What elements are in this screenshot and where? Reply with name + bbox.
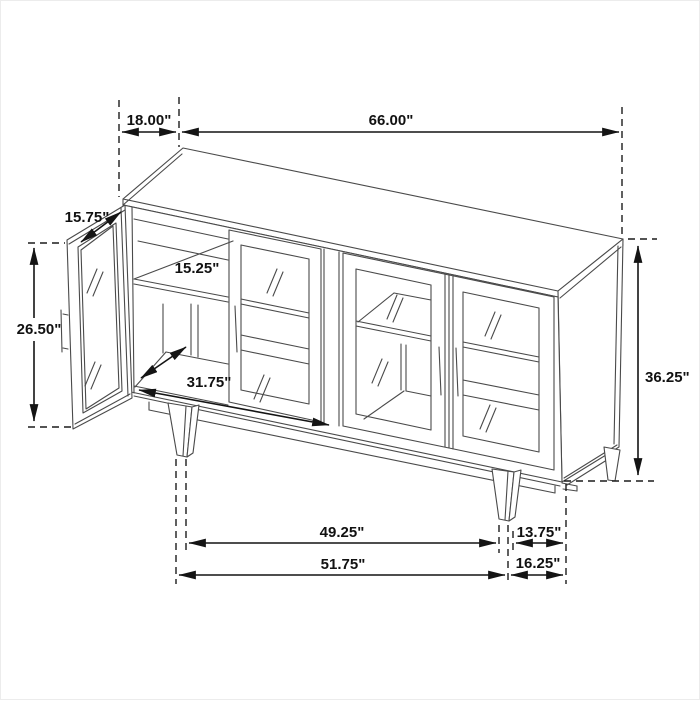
cabinet-drawing	[61, 148, 623, 521]
open-glass-door	[61, 205, 132, 429]
dimension-label-overall-height: 36.25"	[645, 369, 690, 386]
front-right-leg	[492, 469, 521, 521]
dimension-label-door-width: 15.75"	[65, 209, 110, 226]
dimension-shelf-depth: 15.25"	[175, 260, 220, 277]
back-right-leg	[604, 447, 620, 481]
dimension-label-top-depth: 18.00"	[127, 112, 172, 129]
dimension-label-base-span: 51.75"	[321, 556, 366, 573]
door-handle	[61, 310, 68, 352]
dimension-label-interior-width: 31.75"	[187, 374, 232, 391]
dimension-label-side-inset-right: 16.25"	[516, 555, 561, 572]
front-left-leg	[168, 403, 199, 457]
dimension-label-overall-width: 66.00"	[369, 112, 414, 129]
sideboard-dimension-diagram: 18.00" 66.00" 15.75" 26.50" 15.25" 31.75…	[1, 1, 700, 701]
dimension-side-inset-right: 16.25"	[511, 555, 563, 575]
diagram-canvas: 18.00" 66.00" 15.75" 26.50" 15.25" 31.75…	[0, 0, 700, 700]
dimension-label-leg-span: 49.25"	[320, 524, 365, 541]
dimension-door-height: 26.50"	[17, 243, 76, 427]
dimension-label-shelf-depth: 15.25"	[175, 260, 220, 277]
dimension-label-door-height: 26.50"	[17, 321, 62, 338]
dimension-label-leg-inset-right: 13.75"	[517, 524, 562, 541]
